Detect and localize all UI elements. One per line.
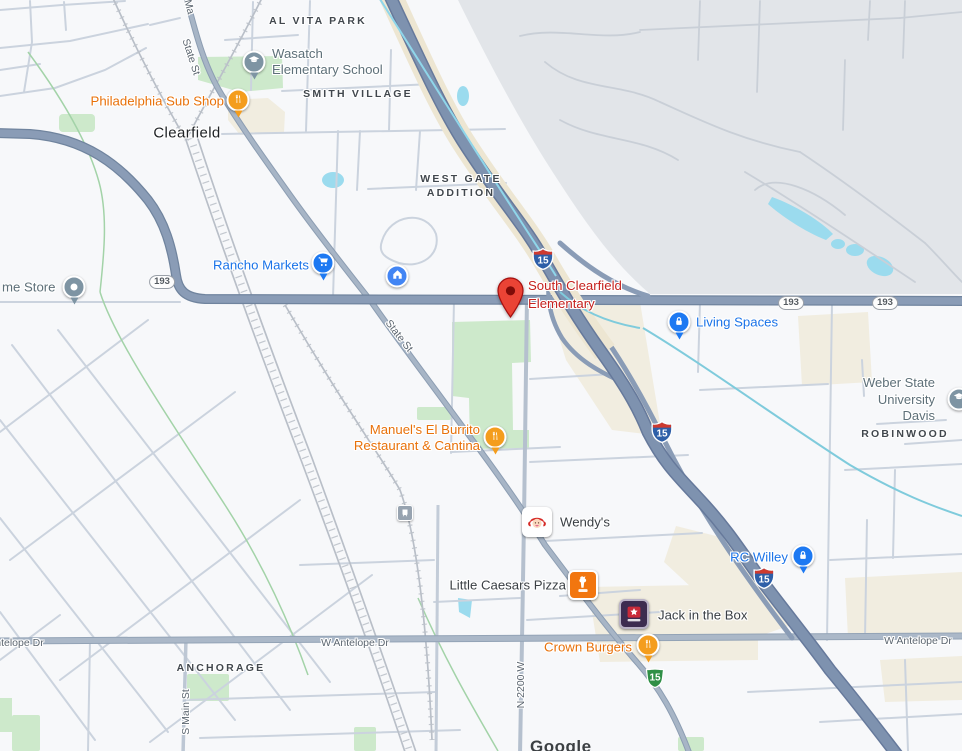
label-line: University	[863, 392, 935, 409]
south-clearfield-elementary-label[interactable]: South Clearfield Elementary	[528, 277, 622, 312]
house-icon	[391, 267, 403, 285]
destination-pin-south-clearfield-elementary[interactable]	[497, 277, 524, 323]
dot-icon	[71, 284, 78, 291]
label-line: Weber State	[863, 375, 935, 392]
google-watermark: Google	[530, 737, 592, 751]
graduation-cap-icon	[953, 390, 962, 408]
wendys-girl-icon	[526, 511, 548, 533]
road-label-w-antelope-dr-mid: W Antelope Dr	[321, 637, 389, 649]
route-193-shield: 193	[149, 275, 175, 289]
interstate-15-shield: 15	[753, 567, 775, 590]
pin-tail	[491, 448, 499, 455]
label-line: Manuel's El Burrito	[354, 422, 480, 438]
route-193-shield: 193	[778, 296, 804, 310]
wasatch-elementary-school-label[interactable]: Wasatch Elementary School	[272, 46, 383, 78]
lock-icon	[798, 547, 809, 565]
living-spaces-pin[interactable]	[668, 311, 691, 334]
label-line: Elementary School	[272, 62, 383, 78]
basemap-terrain	[0, 0, 962, 751]
pin-tail	[250, 73, 258, 80]
fork-knife-icon	[233, 91, 244, 109]
little-caesars-figure-icon	[572, 574, 594, 596]
crown-burgers-label[interactable]: Crown Burgers	[544, 640, 632, 655]
lock-icon	[674, 313, 685, 331]
pin-tail	[319, 274, 327, 281]
pin-tail	[70, 298, 78, 305]
home-store-label-partial[interactable]: me Store	[2, 280, 56, 295]
interstate-15-shield: 15	[651, 421, 673, 444]
label-line: Wasatch	[272, 46, 383, 62]
road-label-s-main-st: S Main St	[180, 689, 192, 735]
train-icon	[400, 508, 410, 518]
label-line: Davis	[863, 408, 935, 425]
home-improvement-pin[interactable]	[386, 265, 409, 288]
fork-knife-icon	[490, 428, 501, 446]
manuels-el-burrito-label[interactable]: Manuel's El Burrito Restaurant & Cantina	[354, 422, 480, 454]
wendys-label[interactable]: Wendy's	[560, 515, 610, 530]
area-label-west-gate-addition: WEST GATE ADDITION	[420, 172, 501, 200]
philadelphia-sub-shop-pin[interactable]	[227, 89, 250, 112]
philadelphia-sub-shop-label[interactable]: Philadelphia Sub Shop	[91, 94, 224, 109]
area-label-anchorage: ANCHORAGE	[177, 662, 266, 674]
business-loop-15-shield: 15	[646, 668, 665, 689]
train-station-icon[interactable]	[397, 505, 413, 521]
fork-knife-icon	[643, 636, 654, 654]
rancho-markets-label[interactable]: Rancho Markets	[213, 258, 309, 273]
red-pin-icon	[497, 277, 524, 318]
pin-tail	[799, 567, 807, 574]
road-label-n-2200-w: N 2200 W	[515, 662, 527, 709]
jack-in-the-box-logo[interactable]	[619, 599, 649, 629]
living-spaces-label[interactable]: Living Spaces	[696, 315, 778, 330]
pin-tail	[675, 333, 683, 340]
area-label-line: WEST GATE	[420, 172, 501, 186]
wendys-logo[interactable]	[522, 507, 552, 537]
rc-willey-label[interactable]: RC Willey	[730, 550, 788, 565]
graduation-cap-icon	[248, 53, 261, 71]
jack-in-the-box-label[interactable]: Jack in the Box	[658, 608, 747, 623]
shield-number: 15	[656, 425, 667, 439]
shield-number: 15	[537, 252, 548, 266]
map-canvas[interactable]: AL VITA PARK SMITH VILLAGE WEST GATE ADD…	[0, 0, 962, 751]
little-caesars-logo[interactable]	[568, 570, 598, 600]
little-caesars-label[interactable]: Little Caesars Pizza	[449, 578, 566, 593]
rc-willey-pin[interactable]	[792, 545, 815, 568]
road-label-w-antelope-dr-right: W Antelope Dr	[884, 635, 952, 647]
area-label-smith-village: SMITH VILLAGE	[303, 88, 413, 100]
route-193-shield: 193	[872, 296, 898, 310]
weber-state-university-davis-label[interactable]: Weber State University Davis	[863, 375, 935, 425]
road-label-w-antelope-dr-left: W Antelope Dr	[0, 637, 44, 649]
label-line: Elementary	[528, 295, 622, 313]
shield-number: 15	[649, 673, 660, 684]
wasatch-school-pin[interactable]	[243, 51, 266, 74]
label-line: Restaurant & Cantina	[354, 438, 480, 454]
area-label-robinwood: ROBINWOOD	[861, 428, 948, 440]
label-line: South Clearfield	[528, 277, 622, 295]
rancho-markets-pin[interactable]	[312, 252, 335, 275]
home-store-pin[interactable]	[63, 276, 86, 299]
crown-burgers-pin[interactable]	[637, 634, 660, 657]
area-label-line: ADDITION	[420, 186, 501, 200]
pin-tail	[234, 111, 242, 118]
interstate-15-shield: 15	[532, 248, 554, 271]
area-label-al-vita-park: AL VITA PARK	[269, 15, 367, 27]
jack-red-box-icon	[623, 603, 645, 625]
shopping-cart-icon	[317, 254, 329, 272]
pin-tail	[644, 656, 652, 663]
shield-number: 15	[758, 571, 769, 585]
manuels-pin[interactable]	[484, 426, 507, 449]
city-label-clearfield[interactable]: Clearfield	[153, 125, 220, 142]
